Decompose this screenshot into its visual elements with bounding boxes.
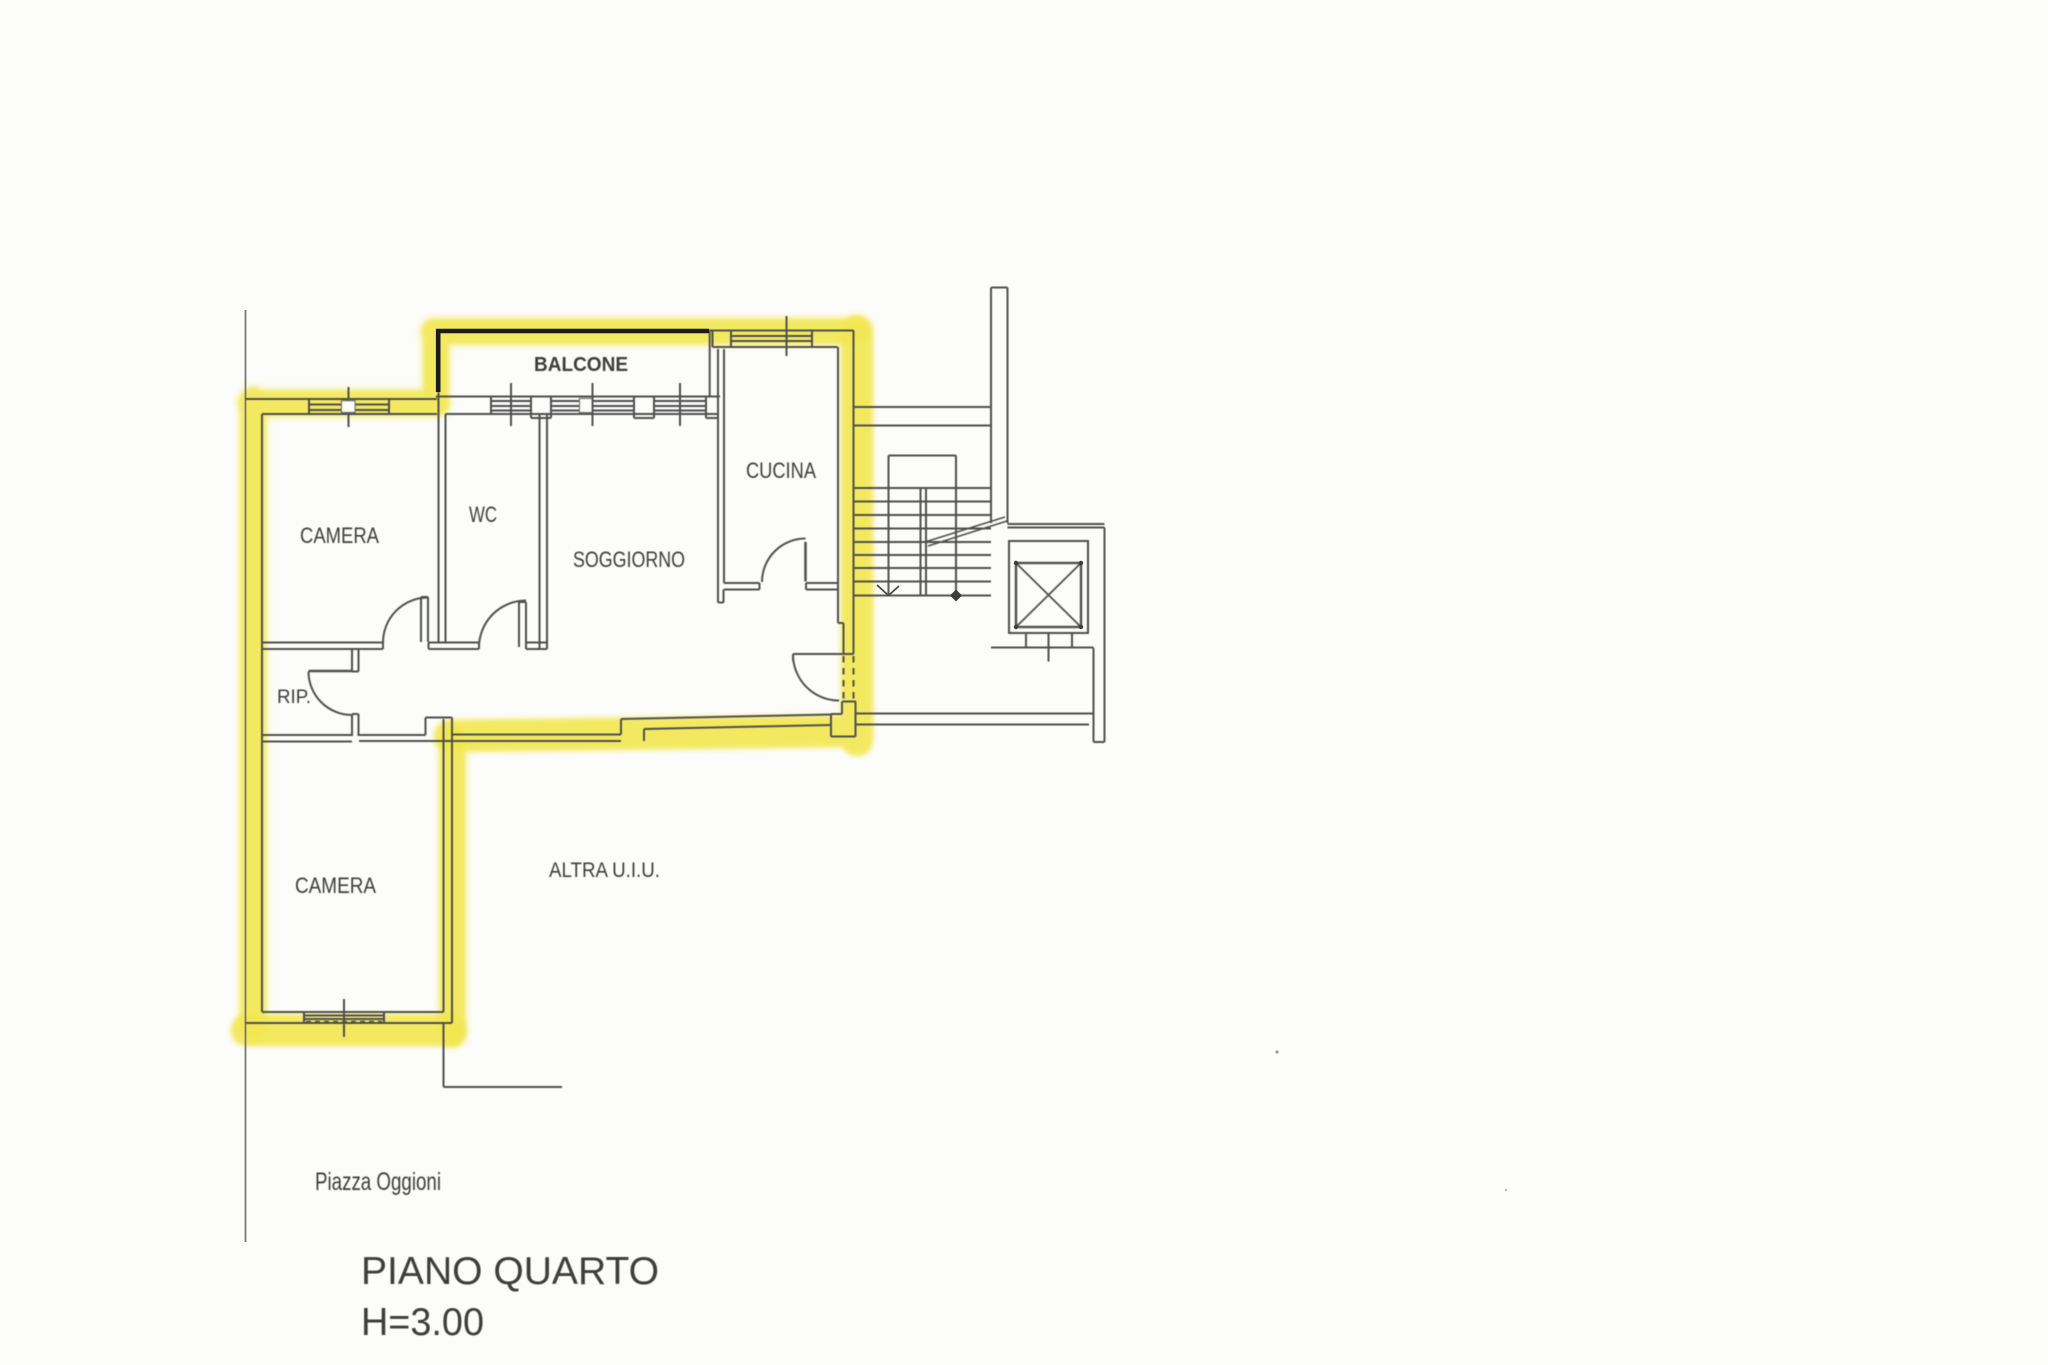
- svg-text:Piazza Oggioni: Piazza Oggioni: [315, 1168, 441, 1196]
- svg-text:PIANO QUARTO: PIANO QUARTO: [361, 1250, 659, 1293]
- svg-text:H=3.00: H=3.00: [361, 1301, 484, 1344]
- svg-text:CAMERA: CAMERA: [295, 873, 376, 898]
- svg-text:RIP.: RIP.: [277, 687, 311, 708]
- svg-text:ALTRA U.I.U.: ALTRA U.I.U.: [549, 859, 660, 882]
- svg-text:WC: WC: [469, 502, 497, 527]
- svg-text:BALCONE: BALCONE: [534, 354, 628, 376]
- svg-text:CUCINA: CUCINA: [746, 458, 816, 483]
- svg-text:CAMERA: CAMERA: [300, 523, 379, 548]
- svg-text:SOGGIORNO: SOGGIORNO: [573, 547, 685, 572]
